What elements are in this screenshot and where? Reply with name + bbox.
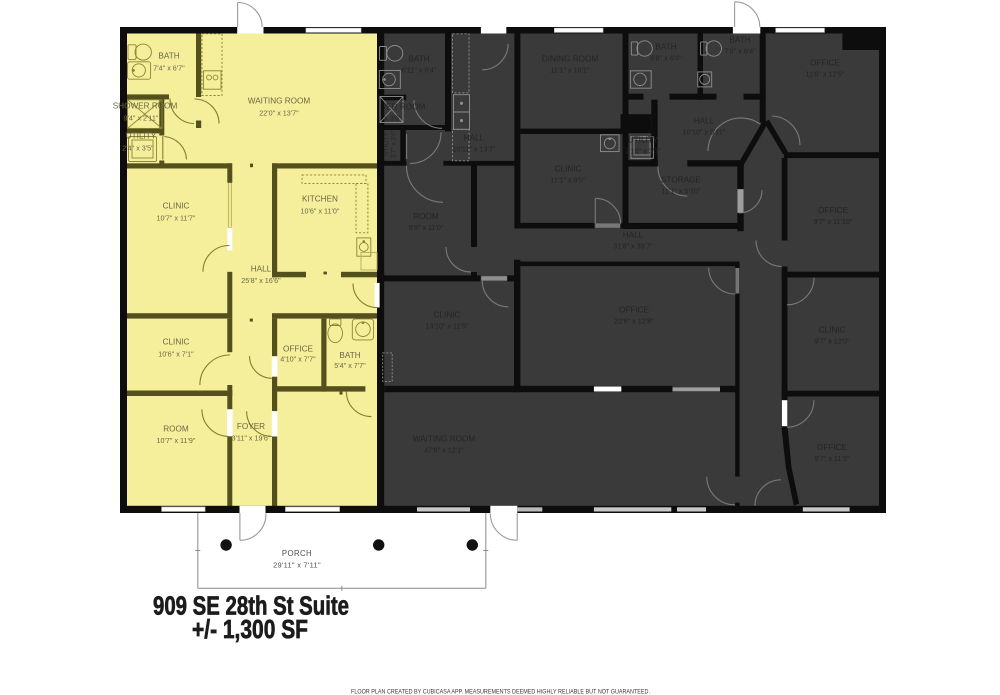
svg-text:HALL: HALL bbox=[623, 231, 644, 240]
svg-text:BATH: BATH bbox=[339, 351, 360, 360]
svg-text:STORAGE: STORAGE bbox=[661, 176, 701, 185]
svg-text:2'7" x 3'6": 2'7" x 3'6" bbox=[391, 130, 398, 158]
svg-text:6'11" x 6'4": 6'11" x 6'4" bbox=[402, 66, 437, 75]
svg-text:OFFICE: OFFICE bbox=[283, 345, 314, 354]
svg-text:BATH: BATH bbox=[158, 52, 179, 61]
svg-text:ROOM: ROOM bbox=[413, 212, 439, 221]
svg-text:OFFICE: OFFICE bbox=[817, 443, 848, 452]
svg-text:47'6" x 12'1": 47'6" x 12'1" bbox=[424, 446, 464, 455]
svg-text:11'1" x 5'10": 11'1" x 5'10" bbox=[662, 187, 701, 196]
svg-text:BATH: BATH bbox=[408, 55, 429, 64]
svg-text:7'0" x 6'4": 7'0" x 6'4" bbox=[724, 47, 756, 56]
svg-text:2'4" x 3'5": 2'4" x 3'5" bbox=[122, 144, 154, 153]
svg-text:WAITING ROOM: WAITING ROOM bbox=[248, 97, 311, 106]
svg-text:29'11" x 7'11": 29'11" x 7'11" bbox=[273, 561, 321, 570]
svg-text:10'7" x 11'7": 10'7" x 11'7" bbox=[157, 214, 196, 223]
svg-text:BATH: BATH bbox=[729, 36, 750, 45]
svg-text:+/- 1,300 SF: +/- 1,300 SF bbox=[192, 616, 308, 644]
svg-text:10'6" x 7'1": 10'6" x 7'1" bbox=[158, 350, 194, 359]
svg-text:11'6" x 12'6": 11'6" x 12'6" bbox=[806, 70, 845, 79]
svg-text:9'7" x 12'0": 9'7" x 12'0" bbox=[814, 337, 850, 346]
svg-text:3'11" x 19'6": 3'11" x 19'6" bbox=[232, 434, 271, 443]
svg-text:22'0" x 13'7": 22'0" x 13'7" bbox=[259, 109, 299, 118]
svg-text:OFFICE: OFFICE bbox=[810, 59, 841, 68]
svg-text:4'10" x 7'7": 4'10" x 7'7" bbox=[280, 355, 316, 364]
svg-text:UTILITY: UTILITY bbox=[126, 132, 157, 141]
svg-text:HALL: HALL bbox=[251, 265, 272, 274]
svg-text:11'1" x 10'1": 11'1" x 10'1" bbox=[551, 66, 590, 75]
svg-text:WAITING ROOM: WAITING ROOM bbox=[413, 435, 476, 444]
svg-text:CLINIC: CLINIC bbox=[163, 338, 190, 347]
svg-text:9'7" x 11'9": 9'7" x 11'9" bbox=[815, 454, 850, 463]
svg-text:9'4" x 2'11": 9'4" x 2'11" bbox=[124, 114, 159, 123]
svg-text:10'6" x 11'0": 10'6" x 11'0" bbox=[301, 207, 340, 216]
svg-text:FOYER: FOYER bbox=[237, 422, 265, 431]
svg-text:HALL: HALL bbox=[694, 117, 715, 126]
svg-text:UTILITY: UTILITY bbox=[628, 136, 659, 145]
svg-text:KITCHEN: KITCHEN bbox=[302, 195, 338, 204]
svg-text:9'6" x 11'0": 9'6" x 11'0" bbox=[409, 223, 444, 232]
svg-text:13'10" x 11'5": 13'10" x 11'5" bbox=[426, 322, 469, 331]
svg-text:31'8" x 39'7": 31'8" x 39'7" bbox=[613, 242, 653, 251]
svg-text:6'8" x 6'4": 6'8" x 6'4" bbox=[650, 54, 682, 63]
svg-text:CLINIC: CLINIC bbox=[434, 311, 461, 320]
svg-text:DINING ROOM: DINING ROOM bbox=[542, 55, 599, 64]
svg-text:5'4" x 7'7": 5'4" x 7'7" bbox=[334, 361, 366, 370]
svg-text:PORCH: PORCH bbox=[282, 549, 312, 558]
svg-text:CLINIC: CLINIC bbox=[163, 202, 190, 211]
svg-text:25'8" x 16'6": 25'8" x 16'6" bbox=[241, 276, 281, 285]
svg-text:10'10" x 6'11": 10'10" x 6'11" bbox=[683, 128, 726, 137]
svg-text:CLINIC: CLINIC bbox=[819, 326, 846, 335]
svg-text:10'7" x 11'9": 10'7" x 11'9" bbox=[157, 436, 196, 445]
svg-text:9'7" x 11'10": 9'7" x 11'10" bbox=[814, 217, 853, 226]
svg-text:BATH: BATH bbox=[655, 43, 676, 52]
svg-text:OFFICE: OFFICE bbox=[818, 206, 849, 215]
svg-text:FLOOR PLAN CREATED BY CUBICASA: FLOOR PLAN CREATED BY CUBICASA APP. MEAS… bbox=[351, 688, 650, 695]
svg-text:7'4" x 6'7": 7'4" x 6'7" bbox=[153, 64, 185, 73]
svg-text:2'10" x 3'3": 2'10" x 3'3" bbox=[625, 147, 661, 156]
svg-text:22'6" x 12'8": 22'6" x 12'8" bbox=[614, 317, 654, 326]
svg-text:11'1" x 9'5": 11'1" x 9'5" bbox=[551, 176, 586, 185]
svg-text:ROOM: ROOM bbox=[163, 425, 189, 434]
svg-text:CLINIC: CLINIC bbox=[555, 165, 582, 174]
svg-text:SHOWER ROOM: SHOWER ROOM bbox=[113, 102, 178, 111]
svg-text:HALL: HALL bbox=[464, 134, 485, 143]
svg-text:OFFICE: OFFICE bbox=[619, 306, 650, 315]
svg-text:10'11" x 13'7": 10'11" x 13'7" bbox=[453, 145, 496, 154]
